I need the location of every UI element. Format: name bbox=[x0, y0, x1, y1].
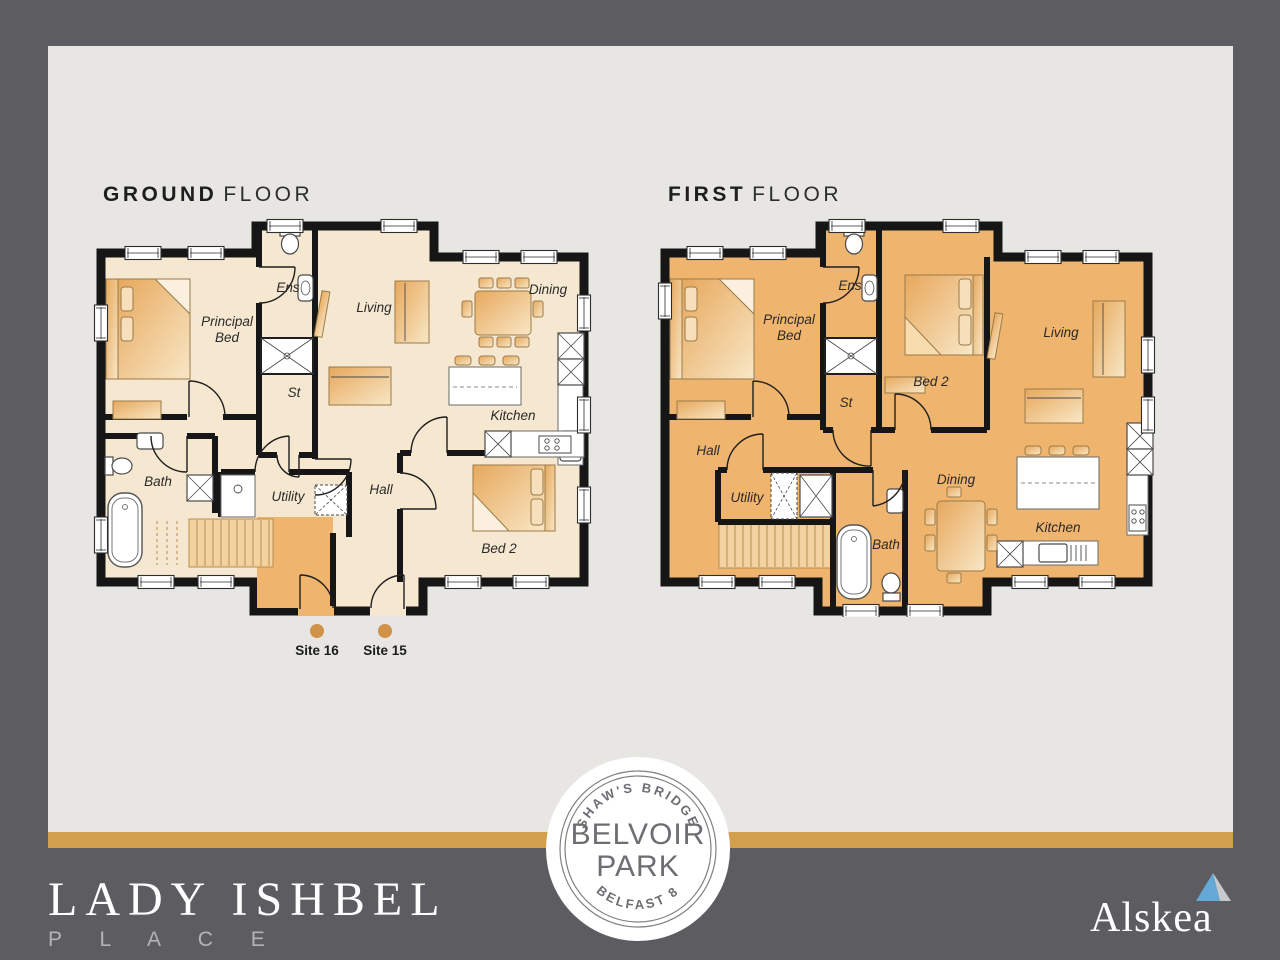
ground-floor-title: GROUNDFLOOR bbox=[103, 183, 313, 207]
room-label-living: Living bbox=[356, 300, 392, 315]
room-label-hall: Hall bbox=[696, 443, 720, 458]
room-label-ens: Ens bbox=[838, 278, 862, 293]
room-label-bed2: Bed 2 bbox=[913, 374, 949, 389]
room-label-living: Living bbox=[1043, 325, 1079, 340]
room-label-dining: Dining bbox=[529, 282, 568, 297]
room-label-ens: Ens bbox=[276, 280, 300, 295]
first-title-strong: FIRST bbox=[668, 183, 746, 206]
first-stairs bbox=[719, 524, 831, 568]
site15-label: Site 15 bbox=[363, 643, 407, 658]
room-label-principal-2: Bed bbox=[777, 328, 802, 343]
ground-floor-plan: Ens Principal Bed Living Dining St Kitch… bbox=[93, 217, 593, 662]
room-label-principal-1: Principal bbox=[201, 314, 254, 329]
development-badge: SHAW'S BRIDGE BELFAST 8 BELVOIR PARK bbox=[545, 756, 731, 942]
badge-name-line2: PARK bbox=[596, 850, 679, 883]
first-floor-title: FIRSTFLOOR bbox=[668, 183, 842, 207]
room-label-bath: Bath bbox=[144, 474, 172, 489]
room-label-kitchen: Kitchen bbox=[1035, 520, 1080, 535]
room-label-bed2: Bed 2 bbox=[481, 541, 517, 556]
room-label-kitchen: Kitchen bbox=[490, 408, 535, 423]
alskea-logo: Alskea bbox=[1090, 872, 1240, 942]
floorplan-flyer: GROUNDFLOOR FIRSTFLOOR bbox=[0, 0, 1280, 960]
site15-dot bbox=[378, 624, 392, 638]
ground-title-strong: GROUND bbox=[103, 183, 217, 206]
room-label-dining: Dining bbox=[937, 472, 976, 487]
room-label-principal-2: Bed bbox=[215, 330, 240, 345]
ground-title-light: FLOOR bbox=[223, 183, 313, 206]
site-markers: Site 16 Site 15 bbox=[295, 624, 407, 658]
brand-subtitle: P L A C E bbox=[48, 928, 448, 952]
room-label-utility: Utility bbox=[731, 490, 765, 505]
alskea-logo-text: Alskea bbox=[1090, 894, 1213, 942]
brand-name: LADY ISHBEL bbox=[48, 878, 448, 922]
room-label-principal-1: Principal bbox=[763, 312, 816, 327]
site16-label: Site 16 bbox=[295, 643, 339, 658]
room-label-bath: Bath bbox=[872, 537, 900, 552]
room-label-st: St bbox=[288, 385, 302, 400]
badge-name-line1: BELVOIR bbox=[571, 818, 706, 851]
room-label-st: St bbox=[840, 395, 854, 410]
development-brand: LADY ISHBEL P L A C E bbox=[48, 878, 448, 952]
first-title-light: FLOOR bbox=[752, 183, 842, 206]
first-floor-plan: Ens Principal Bed Bed 2 Living St Hall U… bbox=[657, 217, 1157, 617]
site16-dot bbox=[310, 624, 324, 638]
room-label-utility: Utility bbox=[272, 489, 306, 504]
room-label-hall: Hall bbox=[369, 482, 393, 497]
